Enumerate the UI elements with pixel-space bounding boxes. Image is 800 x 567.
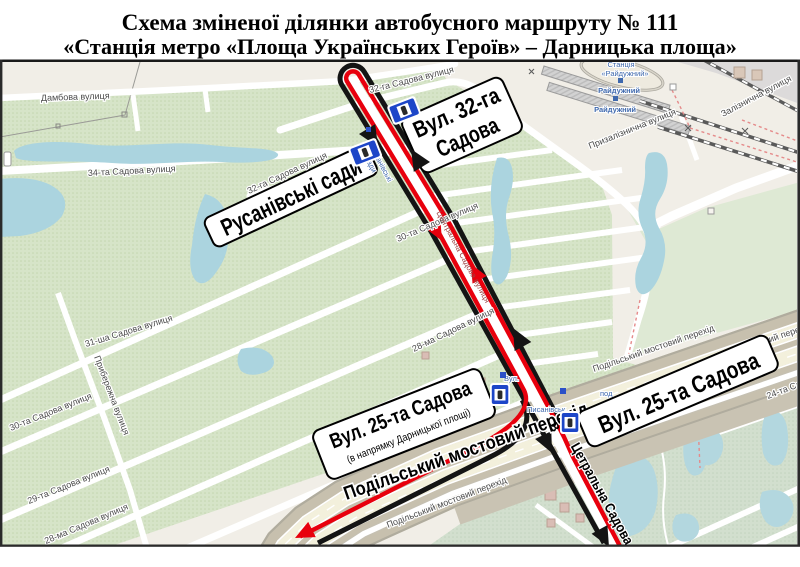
svg-text:Райдужний: Райдужний [594,105,636,114]
svg-text:«Райдужний»: «Райдужний» [601,69,648,78]
svg-text:под: под [600,389,613,398]
svg-text:Райдужний: Райдужний [598,86,640,95]
svg-text:Вул.: Вул. [504,374,519,383]
svg-text:«Станція метро «Площа Українсь: «Станція метро «Площа Українських Героїв… [63,34,737,59]
svg-text:Схема зміненої ділянки автобус: Схема зміненої ділянки автобусного маршр… [122,10,679,36]
